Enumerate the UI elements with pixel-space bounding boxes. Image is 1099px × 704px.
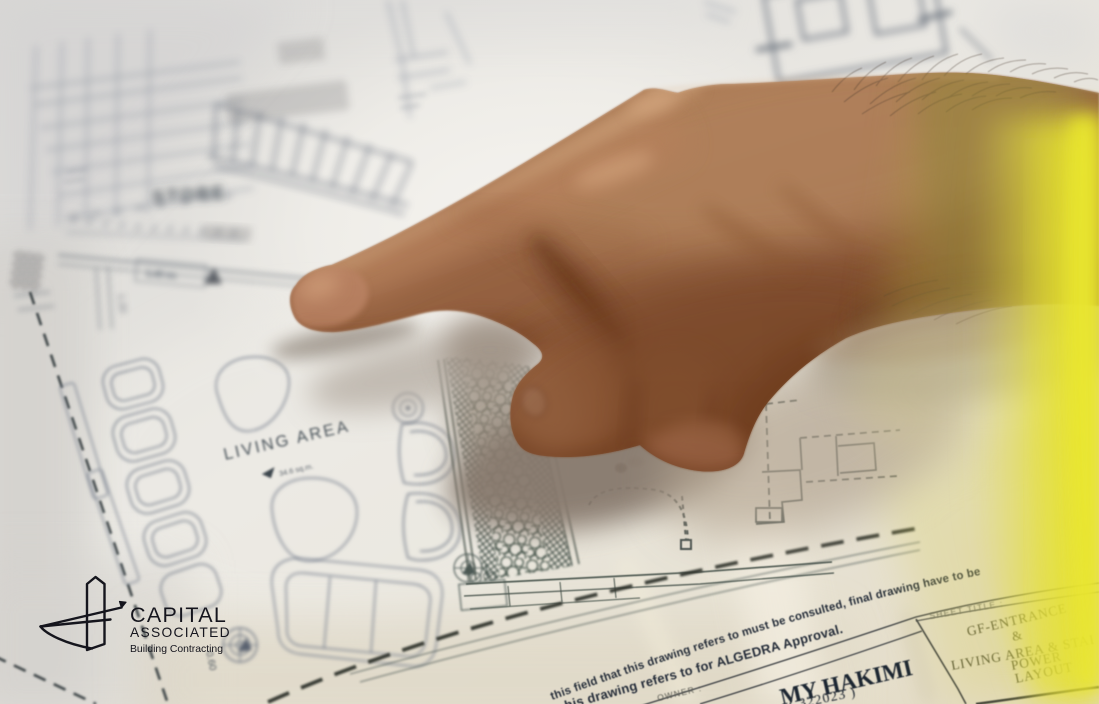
svg-text:Building Contracting: Building Contracting	[130, 644, 223, 655]
svg-text:ASSOCIATED: ASSOCIATED	[130, 625, 231, 640]
svg-text:CAPITAL: CAPITAL	[130, 603, 227, 627]
svg-text:1.20: 1.20	[115, 293, 128, 314]
